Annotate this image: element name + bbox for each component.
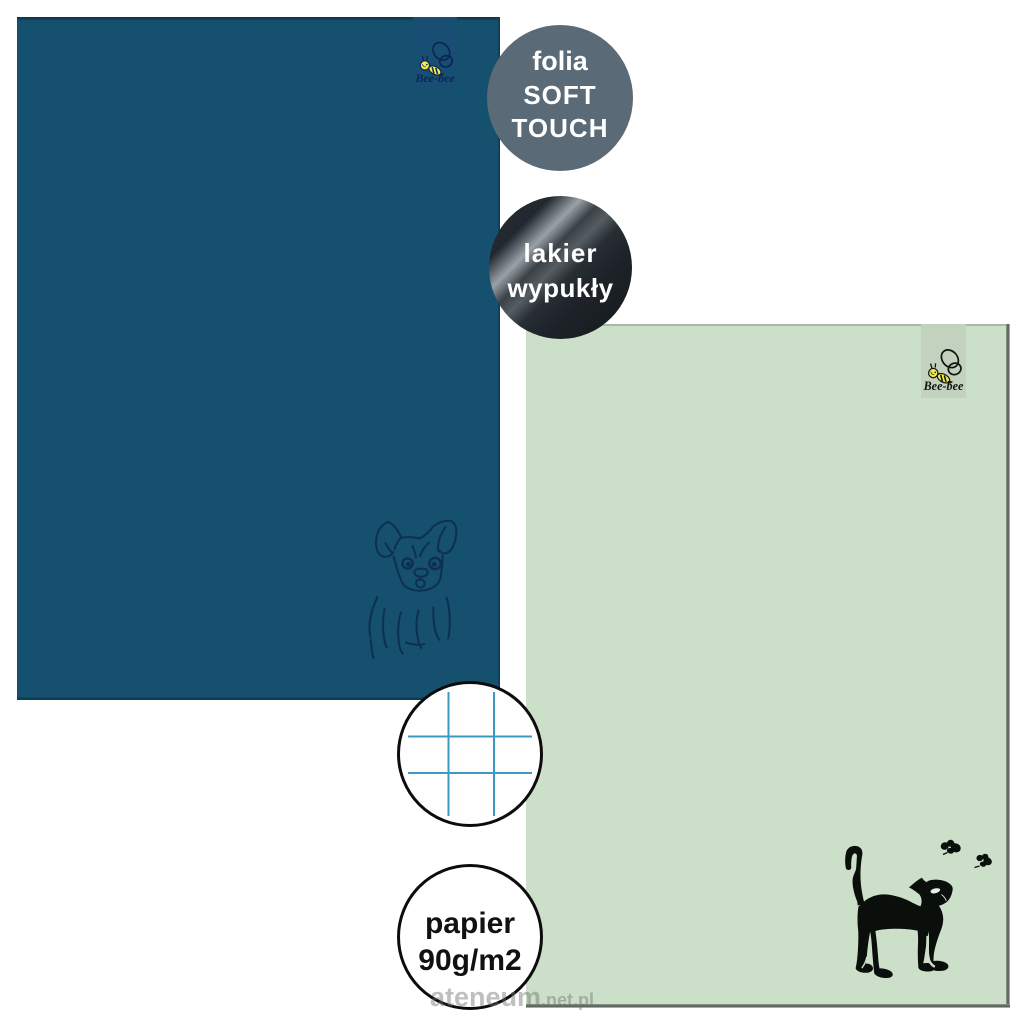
svg-text:Bee-bee: Bee-bee — [414, 71, 455, 85]
svg-text:Bee-bee: Bee-bee — [923, 379, 964, 393]
